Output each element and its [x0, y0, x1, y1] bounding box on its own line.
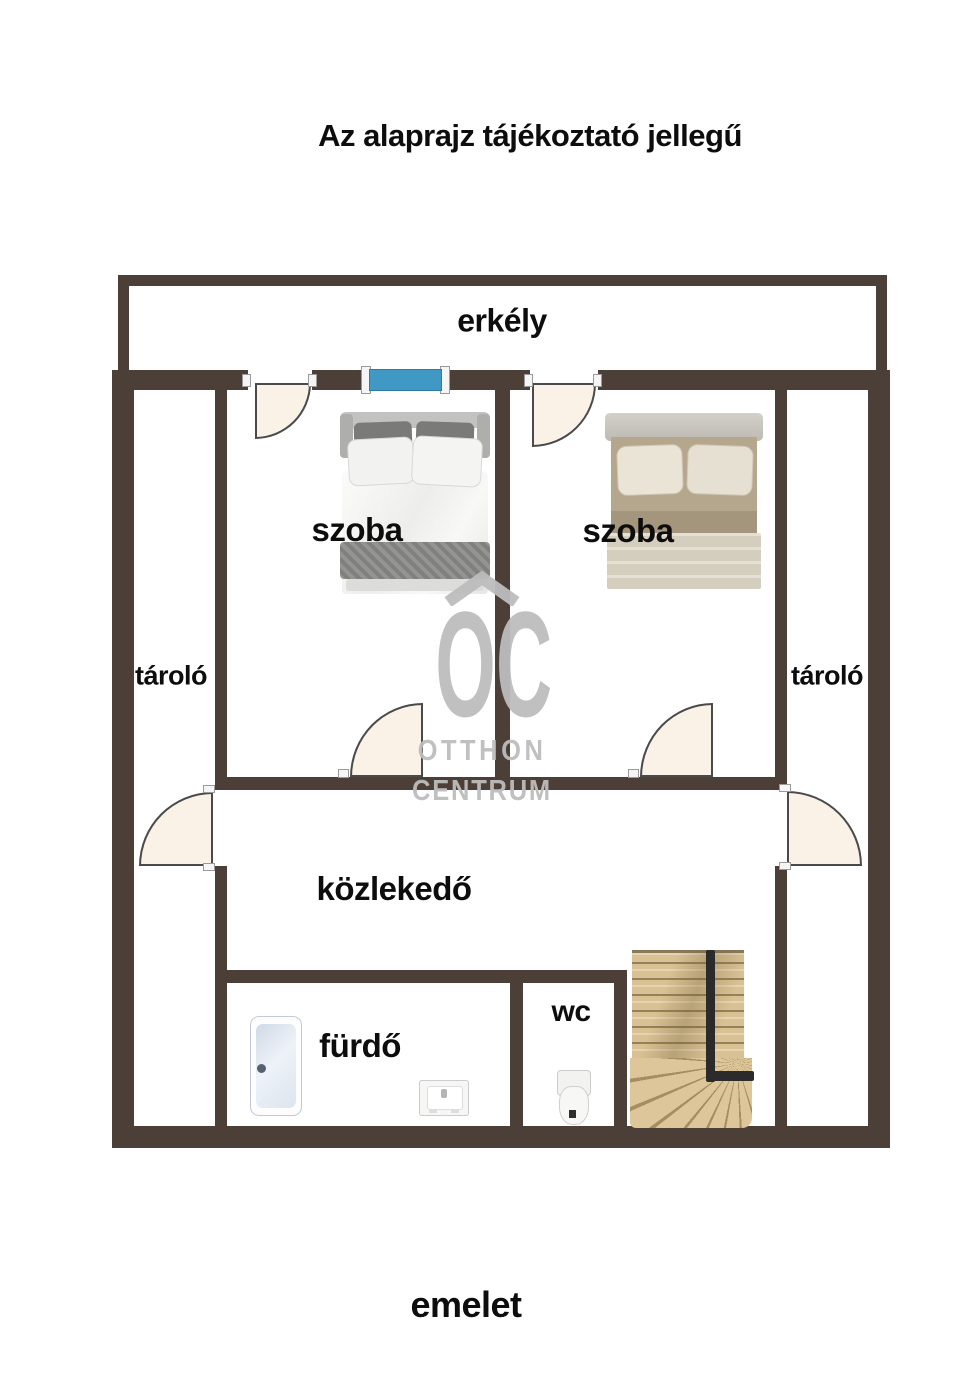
- storage-left-wall-lower: [215, 866, 227, 1126]
- door-jamb: [338, 769, 349, 778]
- wc-label: wc: [551, 995, 590, 1029]
- outer-wall-bottom: [112, 1126, 890, 1148]
- room1-label: szoba: [311, 511, 402, 549]
- storage-left-door: [139, 792, 213, 866]
- pillow: [616, 444, 684, 496]
- stair-handrail-vertical: [706, 950, 715, 1082]
- hallway-wall: [215, 777, 787, 790]
- outer-wall-top-seg4: [598, 370, 890, 390]
- door-jamb: [779, 862, 791, 870]
- outer-wall-top-seg3: [449, 370, 530, 390]
- sink-knob: [429, 1109, 437, 1113]
- floor-plan: Az alaprajz tájékoztató jellegű erkély: [0, 0, 960, 1400]
- balcony-door-room2: [532, 383, 596, 447]
- balcony-wall-top: [118, 275, 887, 286]
- staircase-icon: [630, 950, 755, 1128]
- outer-wall-left: [112, 370, 134, 1148]
- storage-left-wall-upper: [215, 390, 227, 790]
- door-jamb: [308, 374, 317, 387]
- toilet-icon: [556, 1070, 590, 1124]
- toilet-button: [569, 1110, 576, 1118]
- watermark-otthon: OTTHON: [403, 735, 561, 768]
- balcony-wall-right: [876, 275, 887, 372]
- bed-room1-icon: [340, 412, 490, 593]
- door-jamb: [203, 863, 215, 871]
- door-jamb: [242, 374, 251, 387]
- middle-wall: [495, 390, 510, 790]
- door-jamb: [779, 784, 791, 792]
- door-jamb: [593, 374, 602, 387]
- storage-right-wall-upper: [775, 390, 787, 790]
- disclaimer-title: Az alaprajz tájékoztató jellegű: [318, 118, 742, 154]
- storage-right-door: [787, 791, 862, 866]
- storage-right-label: tároló: [791, 661, 863, 692]
- bed-room2-icon: [605, 413, 763, 593]
- hallway-label: közlekedő: [316, 870, 471, 908]
- pillow: [347, 436, 415, 486]
- balcony-wall-left: [118, 275, 129, 372]
- sink-icon: [419, 1080, 469, 1116]
- floor-name-label: emelet: [410, 1284, 521, 1326]
- bed-foot: [346, 579, 484, 591]
- sink-knob: [451, 1109, 459, 1113]
- wc-wall-right: [614, 983, 627, 1126]
- toilet-bowl: [559, 1086, 589, 1125]
- sink-faucet: [441, 1089, 447, 1098]
- bathroom-label: fürdő: [319, 1027, 401, 1065]
- bathtub-icon: [250, 1016, 302, 1116]
- bathroom-wall-top: [227, 970, 627, 983]
- window-glass: [369, 369, 442, 391]
- pillow: [686, 444, 754, 496]
- wc-wall-left: [510, 983, 523, 1126]
- storage-left-label: tároló: [135, 661, 207, 692]
- watermark-initials: OC: [435, 608, 529, 721]
- stair-winders: [630, 1058, 752, 1128]
- balcony-label: erkély: [457, 303, 547, 340]
- outer-wall-right: [868, 370, 890, 1148]
- door-jamb: [628, 769, 639, 778]
- outer-wall-top-seg2: [312, 370, 363, 390]
- room1-door: [350, 703, 423, 777]
- room2-door: [640, 703, 713, 777]
- bathtub-drain: [257, 1064, 266, 1073]
- balcony-door-room1: [255, 383, 311, 439]
- storage-right-wall-lower: [775, 866, 787, 1126]
- door-jamb: [203, 785, 215, 793]
- room2-label: szoba: [582, 512, 673, 550]
- pillow: [411, 435, 483, 488]
- stair-handrail-foot: [710, 1071, 754, 1081]
- stair-flight-shade: [632, 950, 744, 1062]
- door-jamb: [524, 374, 533, 387]
